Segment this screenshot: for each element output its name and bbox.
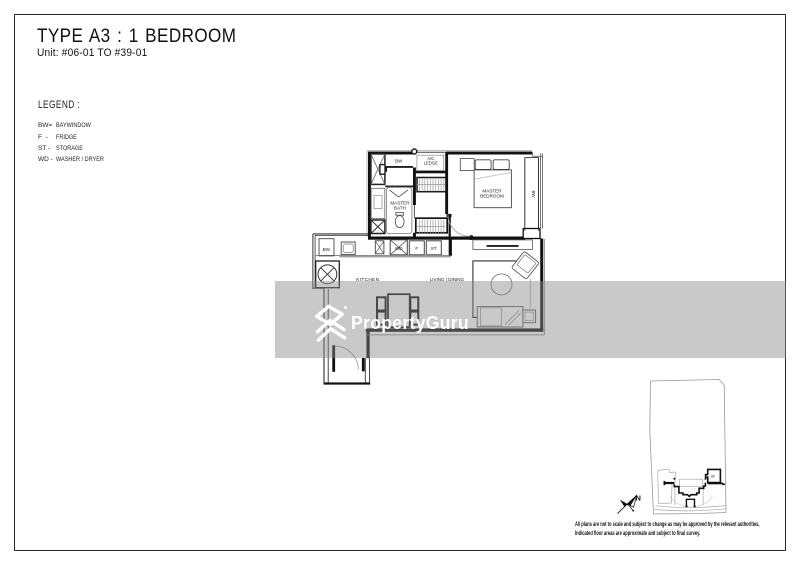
svg-text:ST: ST [431, 246, 437, 251]
svg-text:BATH: BATH [394, 206, 406, 211]
svg-text:F: F [415, 246, 418, 251]
svg-text:WD: WD [395, 246, 403, 251]
svg-text:BW: BW [323, 247, 331, 252]
svg-text:BW: BW [531, 190, 536, 198]
svg-text:LEDGE: LEDGE [424, 160, 438, 165]
svg-text:BEDROOM: BEDROOM [480, 194, 504, 199]
svg-text:88: 88 [711, 475, 715, 479]
svg-text:BW: BW [395, 159, 403, 164]
